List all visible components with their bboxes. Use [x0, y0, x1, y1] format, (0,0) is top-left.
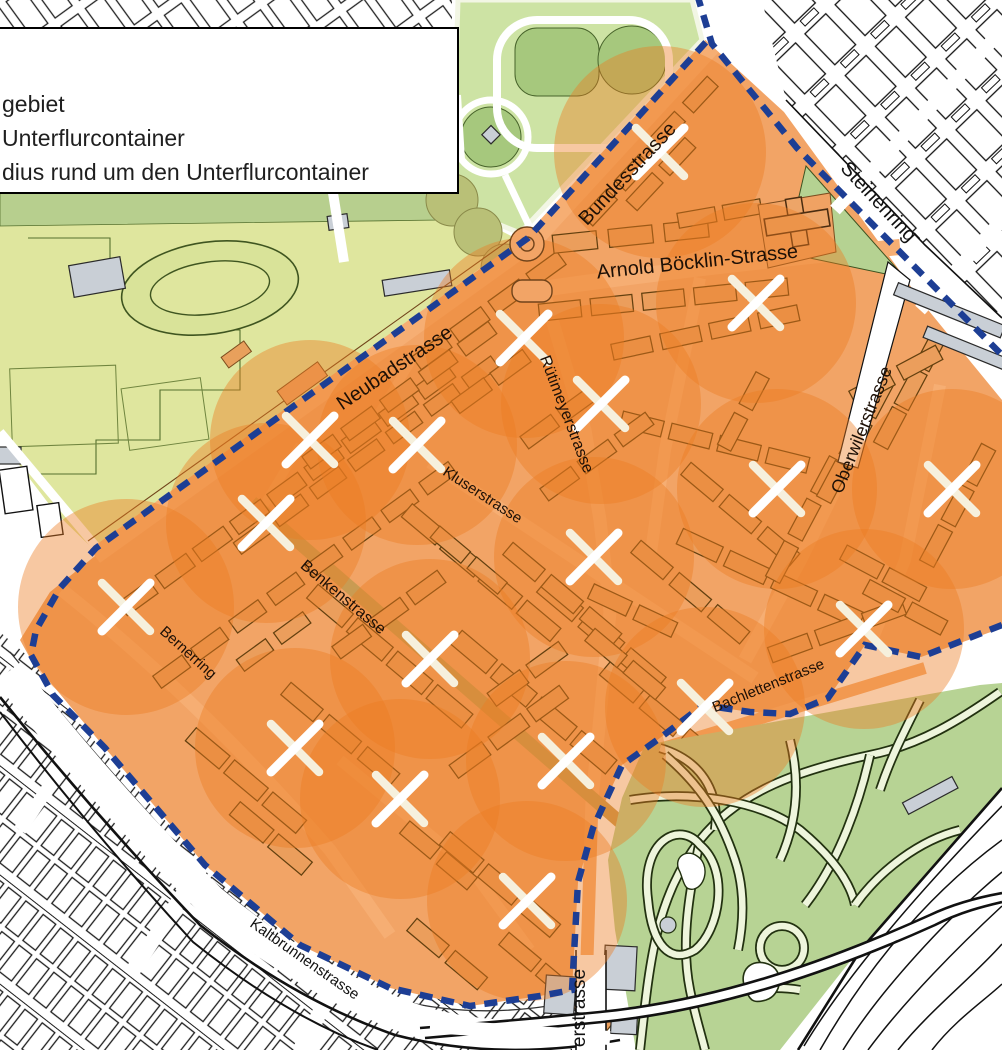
svg-text:erstrasse: erstrasse: [569, 969, 590, 1047]
svg-text:Unterflurcontainer: Unterflurcontainer: [2, 125, 185, 151]
svg-text:gebiet: gebiet: [2, 91, 65, 117]
svg-text:dius rund um den Unterflurcont: dius rund um den Unterflurcontainer: [2, 159, 369, 185]
